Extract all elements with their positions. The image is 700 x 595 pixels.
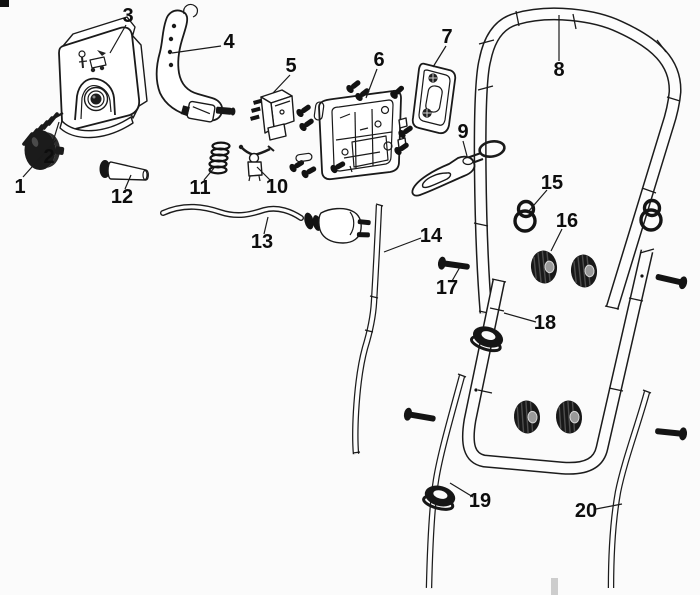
part-spring-coil <box>210 143 230 174</box>
part-label-19-rod-with-clamp: 19 <box>469 490 491 512</box>
part-label-9-cable-guide-bracket: 9 <box>457 121 468 143</box>
part-switch-block <box>250 90 294 140</box>
part-cable-guide-bracket <box>412 139 505 195</box>
part-label-12-pin-bushing: 12 <box>111 186 133 208</box>
watermark-bar <box>551 578 558 595</box>
leader-line-14 <box>384 238 421 252</box>
leader-line-16 <box>551 229 562 251</box>
part-label-15-cable-hook-ring: 15 <box>541 172 563 194</box>
part-label-4-start-lever: 4 <box>223 31 235 53</box>
exploded-parts-diagram: 1234567891011121314151617181920 <box>0 0 700 595</box>
cable-clamp-upper <box>469 323 505 354</box>
part-label-14-control-rod: 14 <box>420 225 443 247</box>
part-wing-knobs <box>513 249 599 434</box>
exploded-parts-diagram-page: 1234567891011121314151617181920 <box>0 0 700 595</box>
part-control-rod <box>353 204 383 454</box>
part-label-3-switch-housing-cover: 3 <box>122 5 133 27</box>
part-pin-bushing <box>100 160 149 180</box>
part-label-1-cap-knob: 1 <box>14 176 25 198</box>
leader-line-7 <box>433 46 446 67</box>
part-label-6-switchbox-housing: 6 <box>373 49 384 71</box>
part-label-5-switch-block: 5 <box>285 55 296 77</box>
part-label-17-carriage-bolt: 17 <box>436 277 458 299</box>
part-label-7-cover-plate: 7 <box>441 26 452 48</box>
cable-clamp-lower <box>422 482 458 512</box>
part-cable-hook-ring-left <box>515 202 535 232</box>
part-label-11-spring-coil: 11 <box>189 177 210 199</box>
leader-line-18 <box>504 313 536 322</box>
corner-mark <box>0 0 9 7</box>
part-label-10-lever-switch: 10 <box>266 176 288 198</box>
part-label-8-upper-handle-bar: 8 <box>553 59 564 81</box>
part-label-16-wing-knob: 16 <box>556 210 578 232</box>
part-handle-tube-right <box>611 390 651 588</box>
part-label-13-power-cable-plug: 13 <box>251 231 273 253</box>
part-label-20-handle-tube-right: 20 <box>575 500 597 522</box>
part-switch-housing-cover <box>59 17 147 138</box>
part-switchbox-housing <box>288 78 415 180</box>
part-label-18-lower-handle-bar: 18 <box>534 312 556 334</box>
part-rod-with-clamp <box>422 374 466 588</box>
part-start-lever <box>157 4 236 122</box>
leader-line-9 <box>463 141 467 156</box>
part-cover-plate <box>413 64 456 134</box>
part-label-2-spring-small: 2 <box>43 146 54 168</box>
part-cable-hook-ring-right <box>641 201 661 231</box>
